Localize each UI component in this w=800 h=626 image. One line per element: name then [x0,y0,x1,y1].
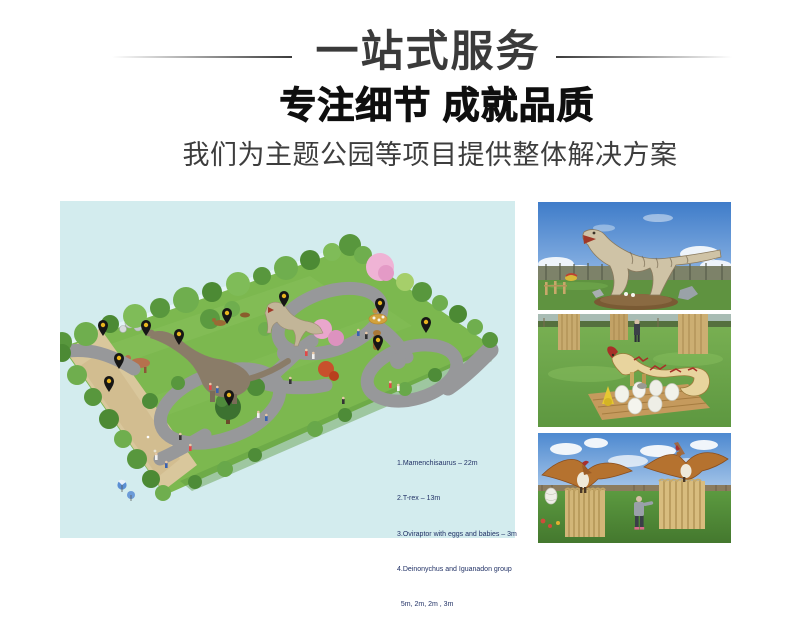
small-dino-figure [565,274,577,281]
legend-line: 2.T-rex – 13m [397,495,515,504]
log-column [610,314,628,340]
title-divider-right [556,56,732,58]
log-column [678,314,708,354]
banner-title: 一站式服务 [316,28,541,77]
park-plan-panel: 1.Mamenchisaurus – 22m 2.T-rex – 13m 3.O… [60,201,515,538]
baby-dino [637,383,647,389]
pterosaurs-photo [538,433,731,543]
legend-line: 5m, 2m, 2m , 3m [397,601,515,610]
wood-fence [544,281,567,295]
legend-line: 4.Deinonychus and Iguanadon group [397,566,515,575]
promo-page: 一站式服务 专注细节 成就品质 我们为主题公园等项目提供整体解决方案 [0,0,800,626]
trex-photo [538,202,731,310]
title-divider-left [112,56,292,58]
palisade-right [659,480,705,530]
headline: 专注细节 成就品质 [279,84,594,128]
egg-sculpture [545,488,557,504]
log-column [558,314,580,350]
legend-line: 1.Mamenchisaurus – 22m [397,460,515,469]
trex-photo-illustration [538,202,731,310]
raptor-eggs-photo [538,314,731,427]
pterosaurs-photo-illustration [538,433,731,543]
raptor-eggs-photo-illustration [538,314,731,427]
palisade-left [565,489,605,538]
umbrella-icons [117,480,135,501]
trex-eye [593,232,596,235]
attraction-legend: 1.Mamenchisaurus – 22m 2.T-rex – 13m 3.O… [397,425,515,626]
subtitle: 我们为主题公园等项目提供整体解决方案 [183,139,678,171]
legend-line: 3.Oviraptor with eggs and babies – 3m [397,531,515,540]
